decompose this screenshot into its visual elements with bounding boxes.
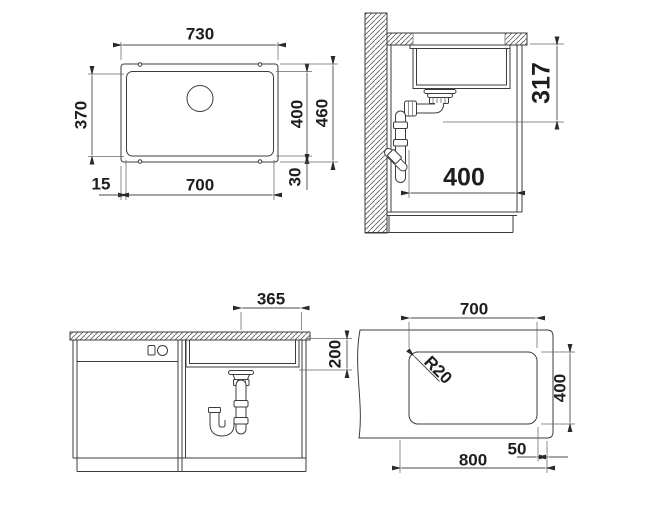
bowl-outer (413, 49, 510, 89)
dim-label-cutout-width: 700 (460, 301, 488, 318)
side-section-view (365, 13, 564, 233)
dim-label-cabinet-width: 800 (459, 452, 487, 469)
drain-strainer (424, 90, 456, 104)
front-drain-plumbing (209, 371, 254, 432)
dim-label-bowl-width: 700 (186, 177, 214, 194)
bowl-front-inner (190, 340, 296, 364)
dim-label-rim-offset-left: 15 (92, 176, 111, 193)
drain-plumbing (387, 101, 439, 178)
cabinet-section (365, 45, 522, 233)
dim-label-bowl-height: 200 (327, 340, 344, 368)
dim-label-outer-width: 730 (186, 26, 214, 43)
appliance-cabinet (73, 340, 178, 458)
dim-label-drain-to-front-distance: 400 (443, 166, 485, 191)
worktop-slab (358, 330, 553, 438)
sink-installation-drawing: 730 370 400 460 30 15 700 317 400 365 20… (0, 0, 648, 530)
dim-label-bowl-inner-depth: 370 (73, 101, 90, 129)
countertop-front (70, 332, 310, 340)
cabinet-plinth (73, 458, 306, 472)
dim-label-bowl-depth: 400 (289, 100, 306, 128)
drain-hole (187, 86, 213, 112)
bowl-front-outer (186, 340, 299, 367)
front-section-view (70, 308, 352, 472)
dim-label-rim-offset-bottom: 30 (287, 168, 304, 187)
dim-label-cutout-depth: 400 (552, 374, 569, 402)
wall-hatched (365, 13, 387, 233)
bowl-inner (417, 49, 507, 86)
dim-label-edge-offset: 50 (508, 441, 527, 458)
dim-label-outer-depth: 460 (314, 99, 331, 127)
appliance-control-panel (148, 346, 155, 356)
appliance-control-knob (158, 346, 168, 356)
dim-label-drain-center-offset: 365 (257, 291, 285, 308)
dim-label-counter-to-drain-height: 317 (530, 62, 555, 104)
sink-flange (410, 45, 510, 49)
